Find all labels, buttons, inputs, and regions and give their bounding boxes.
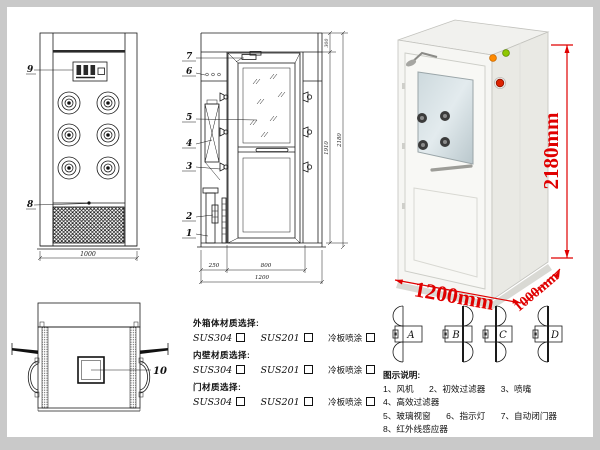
- svg-text:1910: 1910: [324, 141, 330, 155]
- option-label: SUS201: [261, 365, 300, 376]
- legend-item: 10、照明灯: [446, 437, 490, 450]
- checkbox[interactable]: [236, 333, 245, 342]
- svg-text:7: 7: [186, 52, 193, 62]
- air-shower-spec-sheet: 9 8 1000: [0, 0, 600, 450]
- checkbox[interactable]: [236, 365, 245, 374]
- right-nozzles: [303, 92, 312, 172]
- materials-group-title: 内壁材质选择:: [193, 349, 378, 361]
- checkbox[interactable]: [304, 333, 313, 342]
- checkbox[interactable]: [236, 397, 245, 406]
- svg-text:250: 250: [208, 263, 220, 269]
- legend-line: 5、玻璃视窗 6、指示灯 7、自动闭门器 8、红外线感应器: [383, 410, 595, 437]
- svg-text:4: 4: [186, 139, 192, 149]
- glass-window: [243, 68, 290, 143]
- legend-item: 9、控制面板: [383, 437, 431, 450]
- svg-text:2180mm: 2180mm: [539, 112, 563, 189]
- legend-item: 8、红外线感应器: [383, 423, 448, 437]
- front-view-drawing: 9 8 1000: [24, 25, 164, 270]
- option-label: 冷板喷涂: [328, 365, 362, 375]
- svg-text:6: 6: [186, 67, 193, 77]
- height-dimensions: 300 1910 2180: [322, 31, 348, 249]
- svg-text:1000: 1000: [80, 251, 96, 258]
- air-return-grille: [53, 207, 124, 243]
- legend-title: 图示说明:: [383, 369, 595, 383]
- option-label: 冷板喷涂: [328, 397, 362, 407]
- top-band: [38, 303, 140, 327]
- checkbox[interactable]: [366, 397, 375, 406]
- svg-text:300: 300: [324, 39, 330, 48]
- svg-text:A: A: [406, 330, 414, 341]
- door-config-d: D: [533, 306, 562, 362]
- door-config-c: C: [483, 306, 512, 362]
- callout-10: 10: [153, 366, 167, 377]
- door-config-options: A B C D: [388, 303, 573, 365]
- glass-shine-marks: [250, 74, 285, 137]
- checkbox[interactable]: [366, 365, 375, 374]
- legend-item: 3、喷嘴: [501, 383, 532, 397]
- nozzles-grid: [58, 92, 119, 179]
- legend: 图示说明: 1、风机 2、初效过滤器 3、喷嘴 4、高效过滤器 5、玻璃视窗 6…: [383, 369, 595, 450]
- side-view-drawing: 7 6 5 4 3 2 1: [158, 22, 380, 290]
- svg-text:2: 2: [185, 212, 192, 222]
- svg-text:1: 1: [186, 229, 192, 239]
- option-label: SUS304: [193, 333, 232, 344]
- legend-item: 2、初效过滤器: [429, 383, 485, 397]
- materials-options-row: SUS304 SUS201 冷板喷涂: [193, 332, 378, 344]
- svg-text:1200: 1200: [255, 275, 270, 281]
- callout-9: 9: [27, 65, 34, 75]
- option-label: SUS201: [261, 333, 300, 344]
- materials-group-title: 门材质选择:: [193, 381, 378, 393]
- checkbox[interactable]: [304, 365, 313, 374]
- option-label: SUS304: [193, 365, 232, 376]
- door: [228, 52, 300, 244]
- part-callouts: 7 6 5 4 3 2 1: [182, 52, 257, 239]
- top-band: [53, 50, 125, 53]
- control-panel: [73, 62, 107, 81]
- legend-line: 1、风机 2、初效过滤器 3、喷嘴 4、高效过滤器: [383, 383, 595, 410]
- legend-line: 9、控制面板 10、照明灯: [383, 437, 595, 450]
- front-width-dimension: 1000: [38, 251, 139, 261]
- option-label: SUS201: [261, 397, 300, 408]
- svg-text:5: 5: [186, 113, 192, 123]
- door-handle: [256, 148, 288, 151]
- width-dimensions: 250 800 1200: [199, 245, 324, 284]
- svg-text:2180: 2180: [337, 133, 343, 148]
- svg-text:D: D: [550, 330, 559, 341]
- legend-item: 7、自动闭门器: [501, 410, 557, 424]
- indicator-lights: [206, 73, 221, 76]
- top-body: [38, 327, 140, 408]
- legend-item: 4、高效过滤器: [383, 396, 439, 410]
- materials-selection: 外箱体材质选择: SUS304 SUS201 冷板喷涂 内壁材质选择: SUS3…: [193, 317, 378, 413]
- legend-item: 5、玻璃视窗: [383, 410, 431, 424]
- svg-text:C: C: [499, 330, 507, 341]
- product-photo: 2180mm 1200mm 1000mm: [381, 8, 586, 330]
- option-label: 冷板喷涂: [328, 333, 362, 343]
- svg-text:B: B: [451, 330, 459, 341]
- top-view-drawing: 10: [5, 293, 180, 433]
- lower-parts: [203, 188, 226, 243]
- door-config-b: B: [443, 306, 473, 362]
- legend-item: 6、指示灯: [446, 410, 485, 424]
- svg-text:800: 800: [261, 263, 272, 269]
- option-label: SUS304: [193, 397, 232, 408]
- materials-group-title: 外箱体材质选择:: [193, 317, 378, 329]
- legend-item: 1、风机: [383, 383, 414, 397]
- door-config-a: A: [393, 306, 422, 362]
- checkbox[interactable]: [304, 397, 313, 406]
- materials-options-row: SUS304 SUS201 冷板喷涂: [193, 396, 378, 408]
- materials-options-row: SUS304 SUS201 冷板喷涂: [193, 364, 378, 376]
- emergency-button: [496, 79, 504, 87]
- callout-8: 8: [27, 200, 34, 210]
- side-structure: [197, 33, 326, 247]
- svg-text:3: 3: [186, 162, 192, 172]
- checkbox[interactable]: [366, 333, 375, 342]
